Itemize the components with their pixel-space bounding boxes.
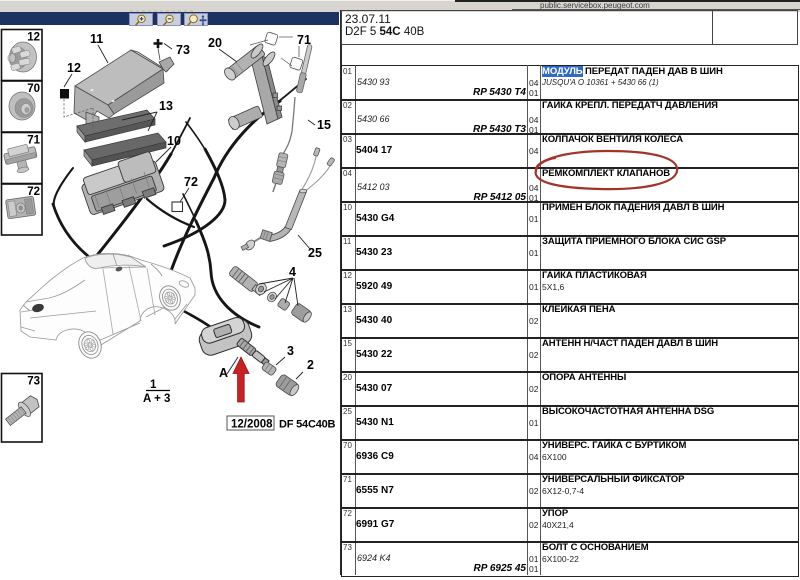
- svg-text:20: 20: [208, 36, 222, 50]
- svg-text:12: 12: [27, 32, 40, 44]
- svg-text:72: 72: [27, 186, 40, 198]
- svg-text:DF 54C40B: DF 54C40B: [279, 419, 336, 431]
- svg-text:A: A: [219, 366, 228, 380]
- svg-text:10: 10: [167, 134, 181, 148]
- svg-text:70: 70: [27, 83, 40, 95]
- svg-text:15: 15: [317, 118, 331, 132]
- svg-text:12: 12: [67, 61, 81, 75]
- svg-text:13: 13: [159, 99, 173, 113]
- svg-text:73: 73: [27, 376, 40, 388]
- svg-text:72: 72: [184, 175, 198, 189]
- svg-text:2: 2: [307, 358, 314, 372]
- svg-text:1: 1: [150, 379, 157, 391]
- svg-text:25: 25: [308, 246, 322, 260]
- svg-text:A + 3: A + 3: [143, 393, 170, 405]
- svg-text:71: 71: [297, 33, 311, 47]
- svg-text:71: 71: [27, 135, 40, 147]
- svg-text:3: 3: [287, 344, 294, 358]
- svg-text:11: 11: [90, 32, 103, 46]
- svg-text:12/2008: 12/2008: [231, 419, 273, 431]
- svg-text:73: 73: [176, 43, 190, 57]
- svg-text:4: 4: [289, 265, 296, 279]
